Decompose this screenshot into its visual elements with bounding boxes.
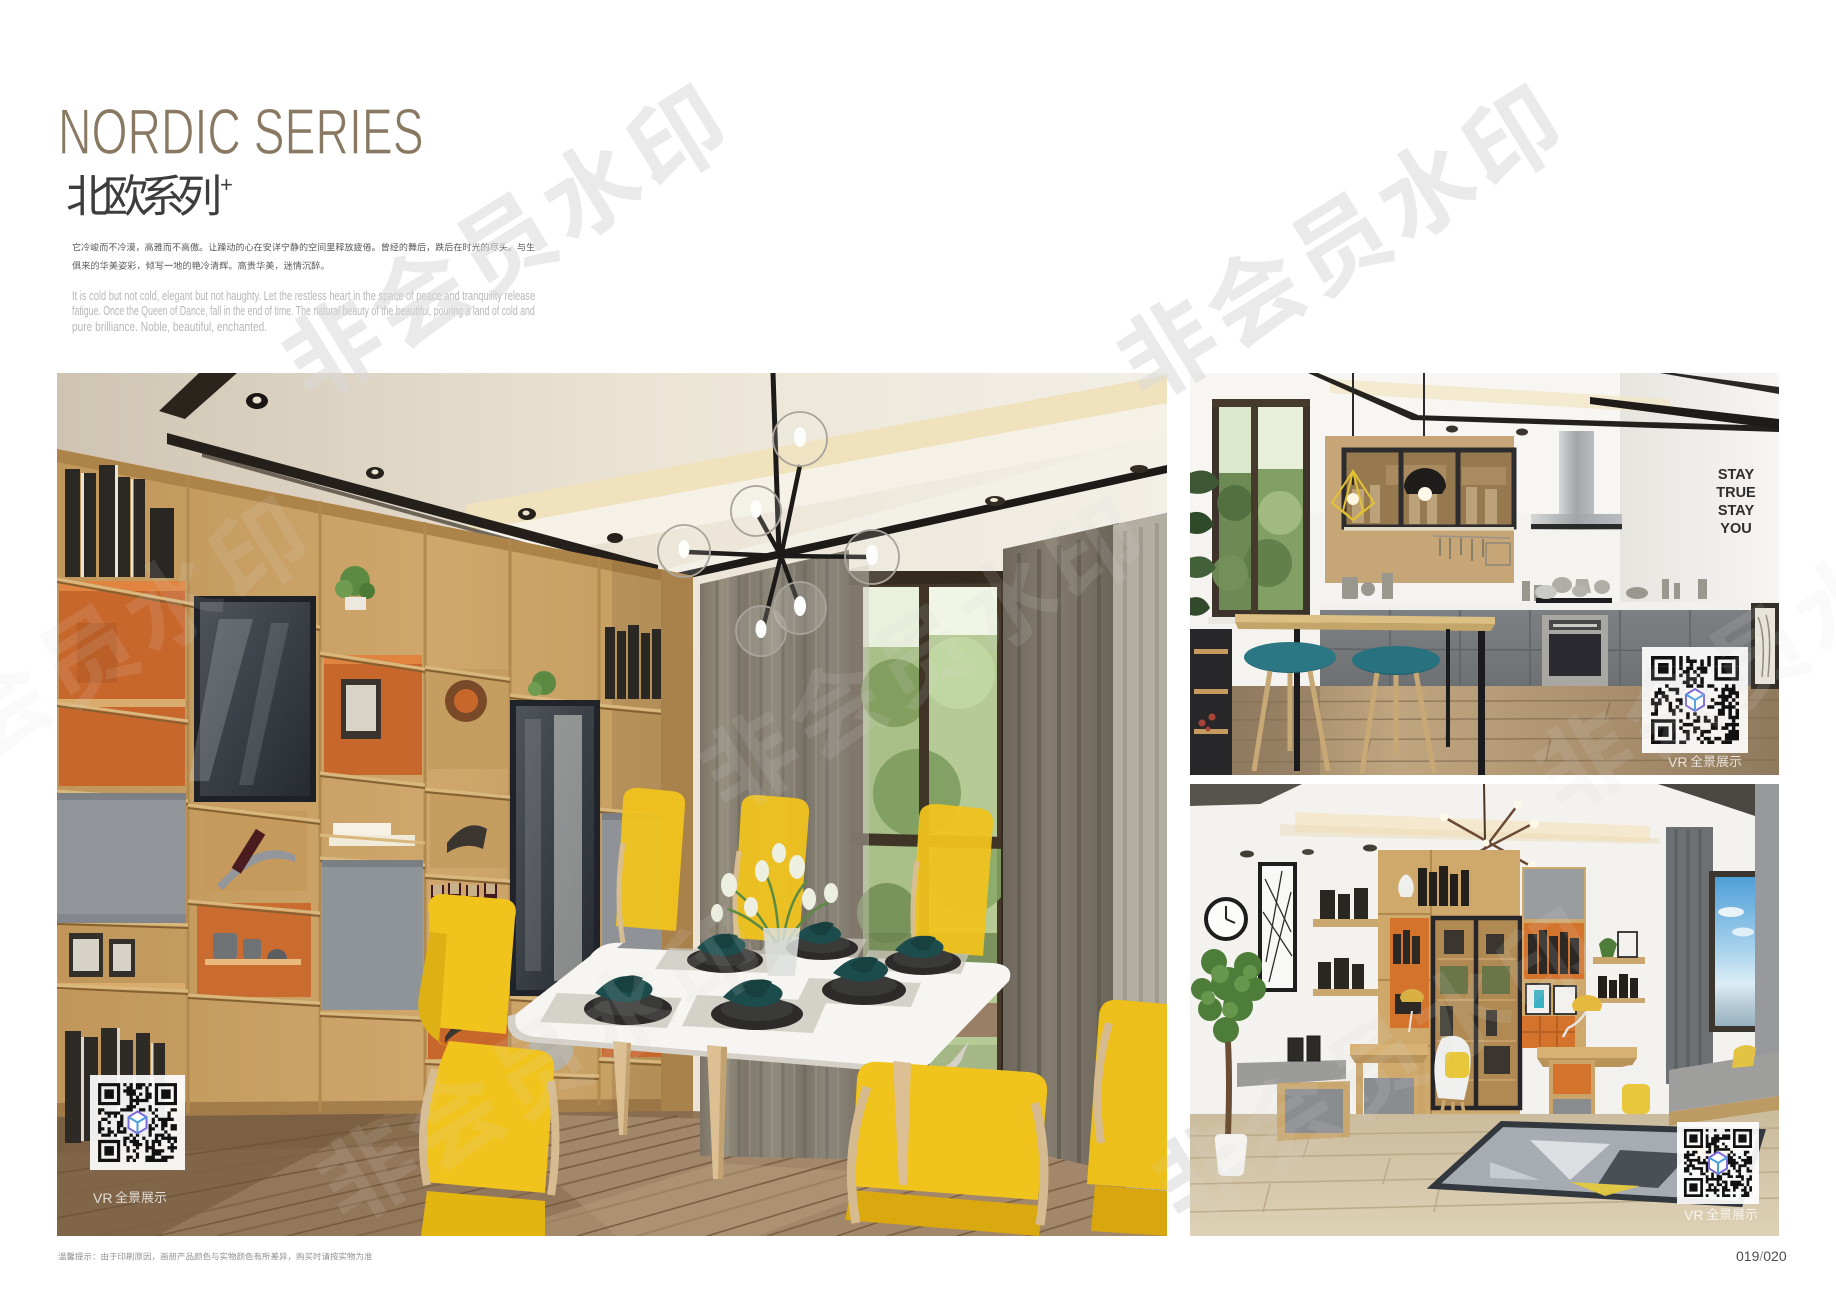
svg-text:VR: VR bbox=[1684, 1207, 1703, 1223]
svg-text:YOU: YOU bbox=[1720, 521, 1751, 537]
svg-text:STAY: STAY bbox=[1718, 467, 1755, 483]
svg-text:VR: VR bbox=[1668, 754, 1687, 770]
svg-text:VR: VR bbox=[93, 1190, 112, 1206]
svg-text:STAY: STAY bbox=[1718, 503, 1755, 519]
svg-text:TRUE: TRUE bbox=[1716, 485, 1756, 501]
svg-text:+: + bbox=[220, 172, 233, 197]
